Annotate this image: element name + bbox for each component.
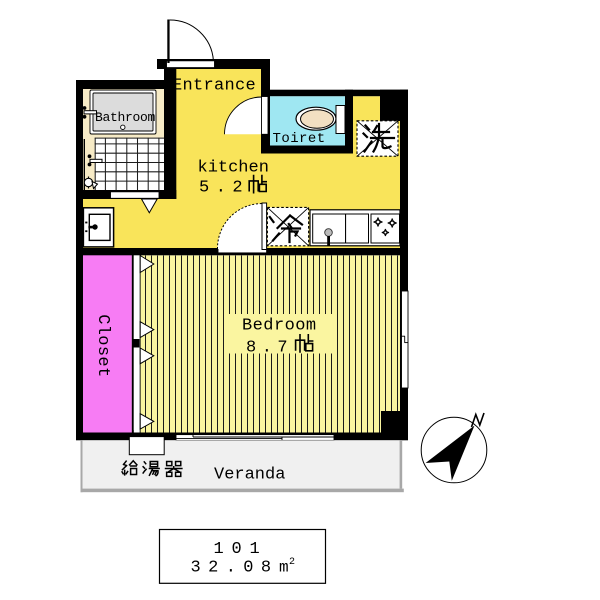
svg-text:5.2: 5.2 bbox=[199, 178, 249, 197]
svg-text:32.08: 32.08 bbox=[191, 559, 279, 578]
svg-text:8.7: 8.7 bbox=[246, 338, 293, 357]
svg-text:Bathroom: Bathroom bbox=[95, 110, 156, 125]
svg-text:kitchen: kitchen bbox=[198, 158, 269, 177]
svg-text:Toiret: Toiret bbox=[273, 131, 326, 147]
svg-text:Veranda: Veranda bbox=[214, 466, 285, 485]
svg-text:101: 101 bbox=[214, 540, 268, 559]
svg-text:2: 2 bbox=[289, 557, 295, 568]
svg-text:Closet: Closet bbox=[93, 314, 112, 377]
svg-text:Entrance: Entrance bbox=[172, 77, 256, 96]
svg-text:Bedroom: Bedroom bbox=[242, 317, 317, 336]
svg-text:m: m bbox=[279, 559, 289, 577]
